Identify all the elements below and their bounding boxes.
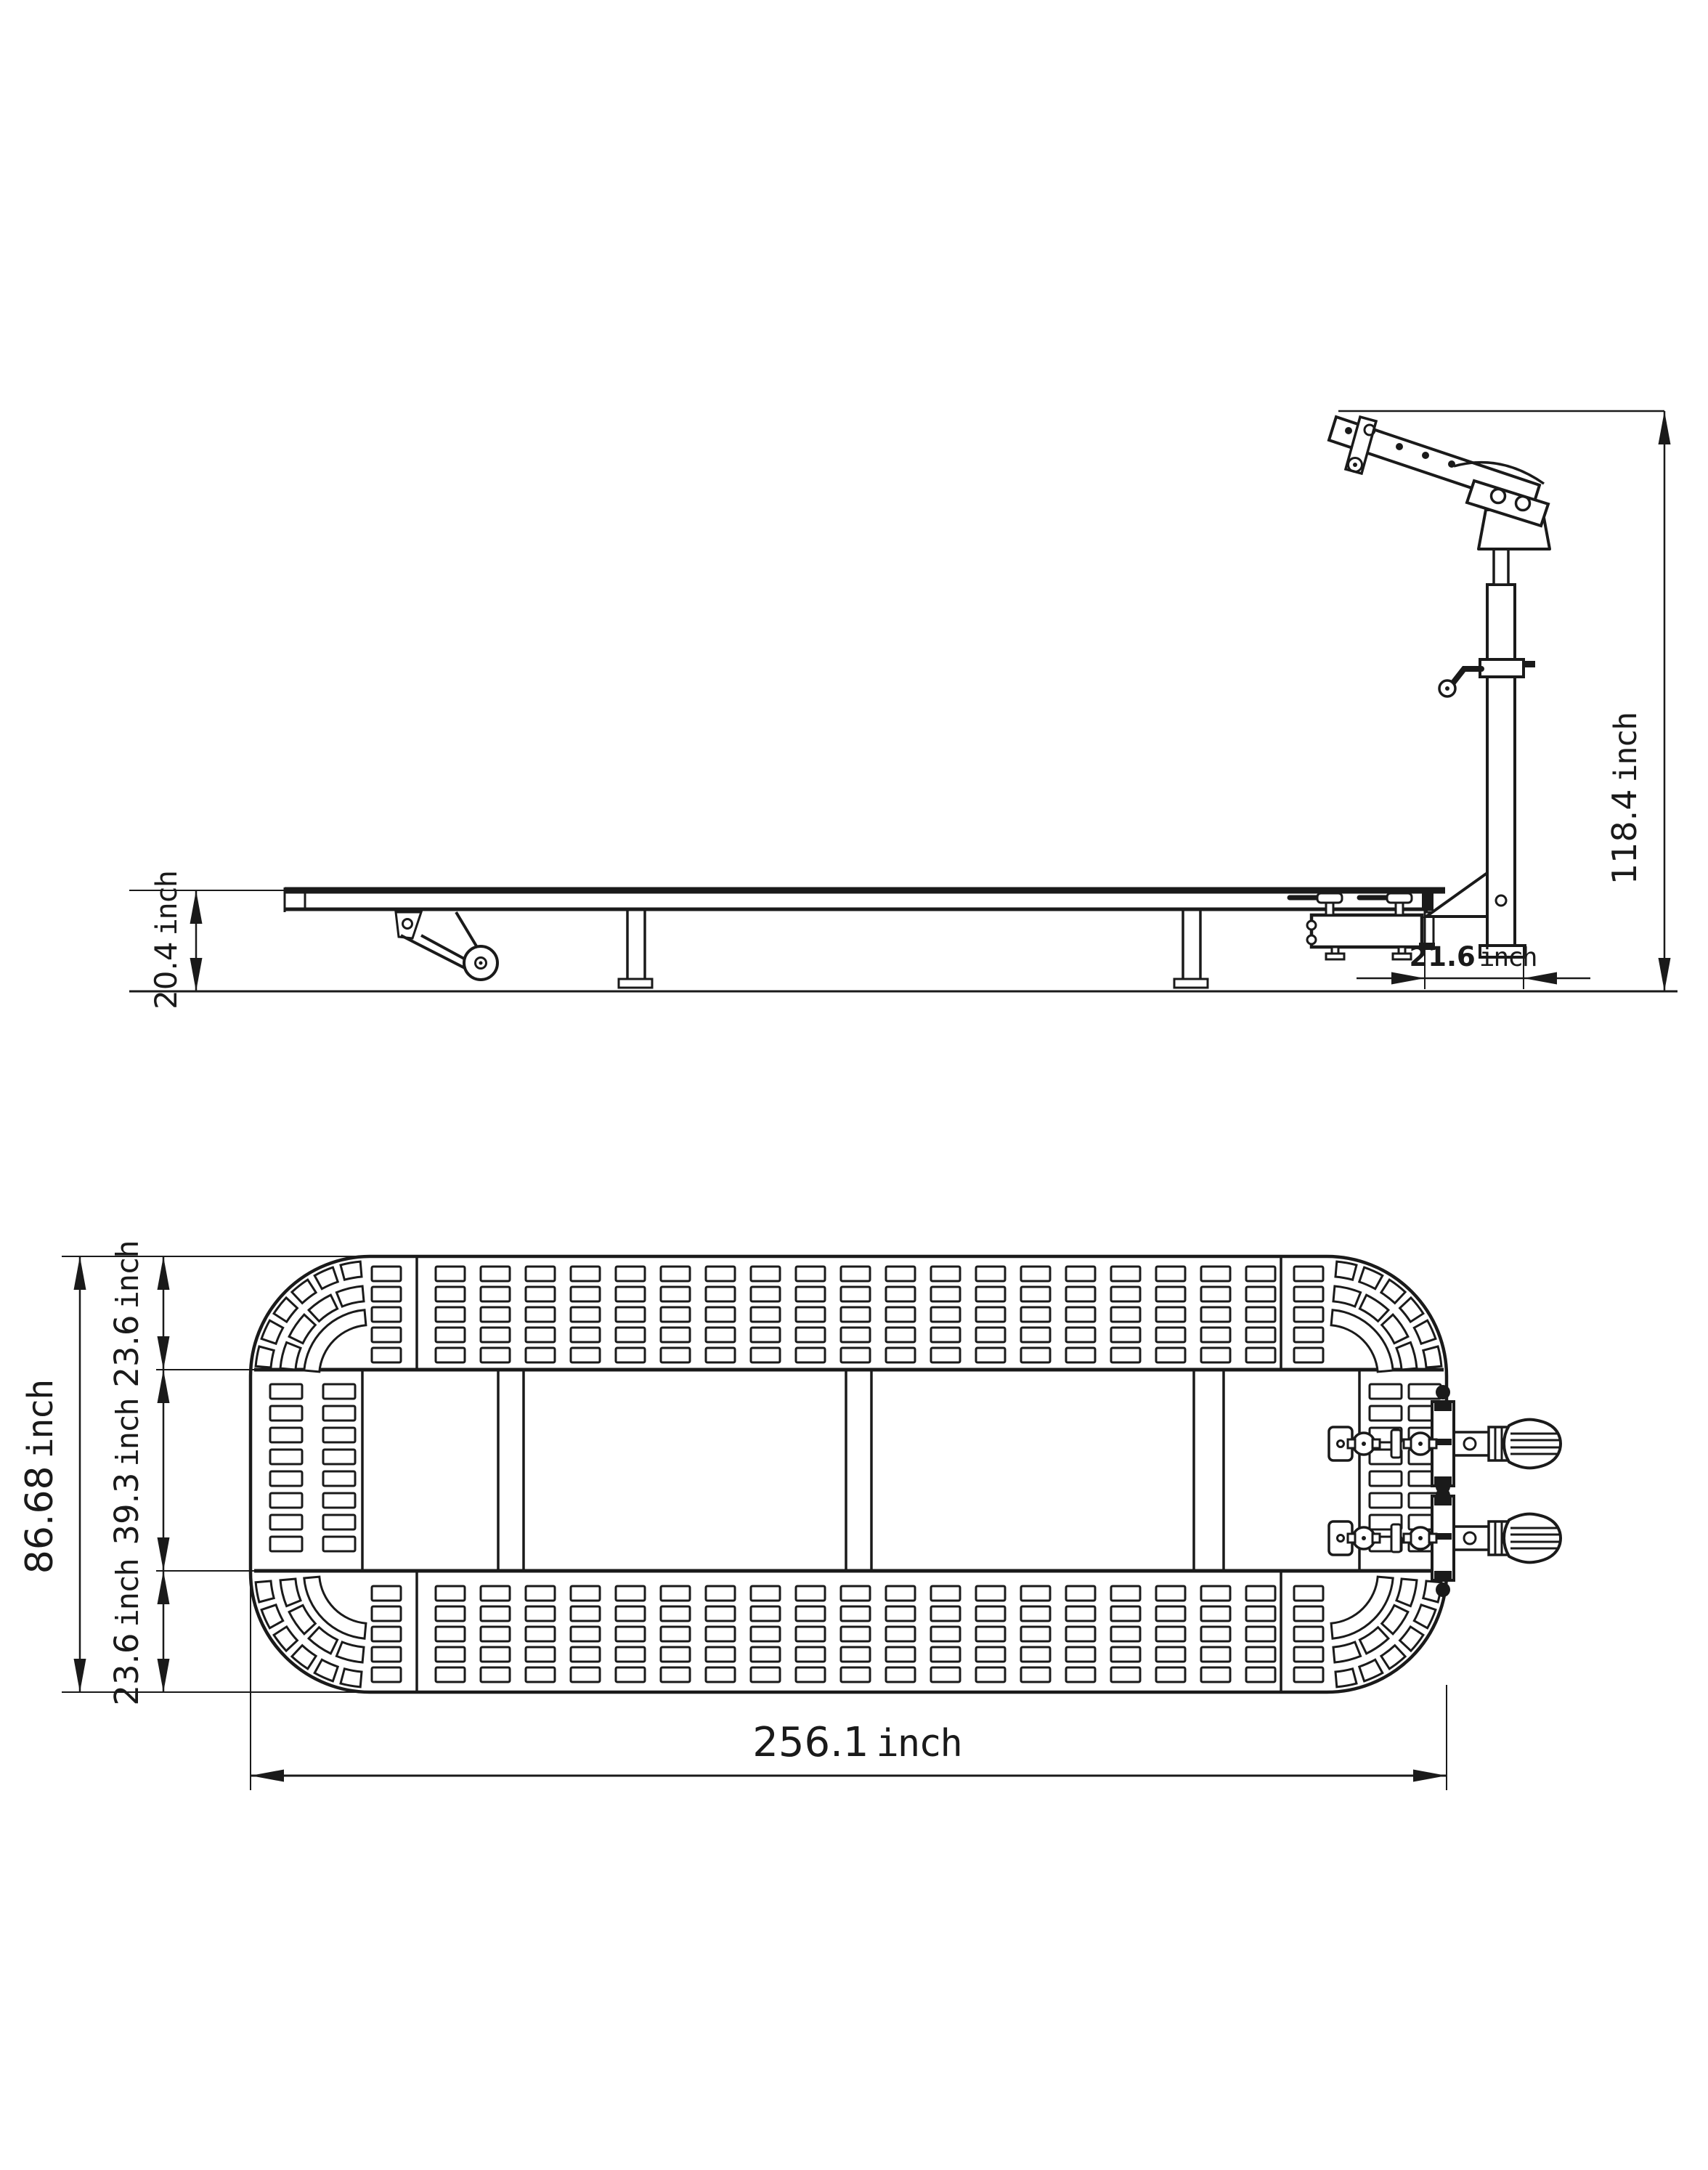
vent-slot	[372, 1667, 401, 1682]
vent-slot	[931, 1348, 960, 1362]
vent-slot	[661, 1307, 690, 1322]
vent-slot	[886, 1627, 915, 1641]
vent-slot	[270, 1493, 302, 1508]
dim-top-band: 23.6inch	[107, 1241, 146, 1387]
vent-slot	[796, 1667, 825, 1682]
vent-slot	[841, 1267, 870, 1281]
vent-slot	[886, 1586, 915, 1601]
vent-slot	[661, 1627, 690, 1641]
vent-slot	[323, 1428, 355, 1442]
vent-slot	[796, 1307, 825, 1322]
corner-arc-slot	[1335, 1261, 1357, 1280]
vent-slot	[1370, 1471, 1402, 1486]
vent-slot	[436, 1627, 465, 1641]
vent-slot	[616, 1287, 645, 1301]
dim-platform-height: 20.4inch	[148, 871, 184, 1009]
vent-slot	[1246, 1667, 1275, 1682]
dim-total-length: 256.1inch	[752, 1719, 961, 1766]
vent-slot	[481, 1267, 510, 1281]
vent-slot	[661, 1267, 690, 1281]
vent-slot	[1201, 1627, 1230, 1641]
vent-slot	[886, 1348, 915, 1362]
vent-slot	[841, 1606, 870, 1621]
vent-slot	[436, 1328, 465, 1342]
vent-slot	[481, 1586, 510, 1601]
vent-slot	[1294, 1627, 1323, 1641]
vent-slot	[751, 1267, 780, 1281]
vent-slot	[436, 1348, 465, 1362]
vent-slot	[372, 1267, 401, 1281]
vent-slot	[270, 1450, 302, 1464]
vent-slot	[526, 1606, 555, 1621]
dim-base-offset: 21.6inch	[1410, 941, 1537, 972]
vent-slot	[571, 1348, 600, 1362]
boom-arm	[1329, 417, 1548, 526]
vent-slot	[526, 1348, 555, 1362]
vent-slot	[270, 1471, 302, 1486]
vent-slot	[1246, 1606, 1275, 1621]
vent-slot	[1111, 1287, 1140, 1301]
vent-slot	[1246, 1267, 1275, 1281]
side-view: 20.4inch 118.4inch 21.6inch	[129, 411, 1677, 1009]
vent-slot	[323, 1493, 355, 1508]
vent-slot	[571, 1307, 600, 1322]
vent-slot	[1201, 1606, 1230, 1621]
vent-slot	[886, 1647, 915, 1662]
vent-slot	[976, 1606, 1005, 1621]
vent-slot	[1156, 1328, 1185, 1342]
vent-slot	[1111, 1328, 1140, 1342]
support-leg-rear	[1174, 909, 1208, 988]
vent-slot	[1294, 1647, 1323, 1662]
support-leg-front	[619, 909, 652, 988]
vent-slot	[323, 1471, 355, 1486]
vent-slot	[526, 1287, 555, 1301]
dim-middle-band: 39.3inch	[107, 1399, 146, 1545]
vent-slot	[1156, 1627, 1185, 1641]
vent-slot	[1156, 1287, 1185, 1301]
vent-slot	[1370, 1493, 1402, 1508]
vent-slot	[436, 1647, 465, 1662]
vent-slot	[1066, 1586, 1095, 1601]
corner-arc-slot	[256, 1346, 274, 1368]
vent-slot	[1294, 1667, 1323, 1682]
vent-slot	[931, 1267, 960, 1281]
vent-slot	[1246, 1307, 1275, 1322]
vent-slot	[1294, 1586, 1323, 1601]
vent-slot	[706, 1328, 735, 1342]
vent-slot	[1294, 1287, 1323, 1301]
vent-slot	[796, 1348, 825, 1362]
vent-slot	[886, 1606, 915, 1621]
vent-slot	[372, 1586, 401, 1601]
vent-slot	[270, 1515, 302, 1529]
vent-slot	[481, 1307, 510, 1322]
vent-slot	[886, 1307, 915, 1322]
vent-slot	[372, 1348, 401, 1362]
vent-slot	[1066, 1647, 1095, 1662]
vent-slot	[270, 1406, 302, 1421]
vent-slot	[1066, 1348, 1095, 1362]
vent-slot	[661, 1287, 690, 1301]
vent-slot	[616, 1307, 645, 1322]
side-view-dimensions: 20.4inch 118.4inch 21.6inch	[148, 411, 1671, 1009]
vent-slot	[1156, 1667, 1185, 1682]
vent-slot	[436, 1667, 465, 1682]
vent-slot	[1246, 1287, 1275, 1301]
vent-slot	[976, 1647, 1005, 1662]
vent-slot	[1201, 1267, 1230, 1281]
dim-total-height: 118.4inch	[1605, 713, 1644, 885]
vent-slot	[616, 1627, 645, 1641]
vent-slot	[481, 1647, 510, 1662]
vent-slot	[481, 1348, 510, 1362]
vent-slot	[751, 1307, 780, 1322]
vent-slot	[1021, 1307, 1050, 1322]
vent-slot	[796, 1606, 825, 1621]
vent-slot	[1370, 1406, 1402, 1421]
vent-slot	[751, 1586, 780, 1601]
vent-slot	[1246, 1647, 1275, 1662]
corner-arc-slot	[256, 1581, 274, 1602]
vent-slot	[571, 1627, 600, 1641]
vent-slot	[1294, 1348, 1323, 1362]
vent-slot	[841, 1627, 870, 1641]
technical-drawing-page: 20.4inch 118.4inch 21.6inch	[0, 0, 1708, 2170]
vent-slot	[436, 1606, 465, 1621]
vent-slot	[1066, 1287, 1095, 1301]
vent-slot	[1246, 1627, 1275, 1641]
vent-slot	[436, 1267, 465, 1281]
vent-slot	[796, 1627, 825, 1641]
vent-slot	[1021, 1647, 1050, 1662]
vent-slot	[616, 1586, 645, 1601]
vent-slot	[661, 1348, 690, 1362]
mast-lower-tube	[1487, 585, 1515, 946]
vent-slot	[751, 1627, 780, 1641]
vent-slot	[796, 1586, 825, 1601]
vent-slot	[323, 1406, 355, 1421]
vent-slot	[841, 1307, 870, 1322]
vent-slot	[270, 1384, 302, 1399]
vent-slot	[706, 1348, 735, 1362]
vent-slot	[323, 1450, 355, 1464]
vent-slot	[571, 1606, 600, 1621]
vent-slot	[372, 1307, 401, 1322]
vent-slot	[481, 1328, 510, 1342]
vent-slot	[571, 1647, 600, 1662]
vent-slot	[1156, 1348, 1185, 1362]
vent-slot	[796, 1267, 825, 1281]
vent-slot	[1201, 1348, 1230, 1362]
vent-slot	[571, 1267, 600, 1281]
vent-slot	[751, 1287, 780, 1301]
vent-slot	[1021, 1667, 1050, 1682]
platform	[129, 887, 1445, 912]
vent-slot	[323, 1515, 355, 1529]
vent-slot	[1246, 1328, 1275, 1342]
vent-slot	[436, 1287, 465, 1301]
dim-bottom-band: 23.6inch	[107, 1559, 146, 1705]
vent-slot	[1201, 1287, 1230, 1301]
dim-total-width: 86.68inch	[18, 1381, 62, 1574]
vent-slot	[616, 1348, 645, 1362]
vent-slot	[270, 1537, 302, 1551]
vent-slot	[481, 1606, 510, 1621]
vent-slot	[1370, 1384, 1402, 1399]
vent-slot	[796, 1647, 825, 1662]
vent-slot	[751, 1606, 780, 1621]
vent-slot	[526, 1647, 555, 1662]
mast-upper-tube	[1494, 546, 1508, 585]
vent-slot	[751, 1348, 780, 1362]
vent-slot	[1111, 1348, 1140, 1362]
vent-slot	[706, 1606, 735, 1621]
vent-slot	[372, 1287, 401, 1301]
corner-arc-slot	[1335, 1669, 1357, 1687]
vent-slot	[931, 1647, 960, 1662]
vent-slot	[616, 1606, 645, 1621]
vent-slot	[1201, 1328, 1230, 1342]
vent-slot	[706, 1667, 735, 1682]
corner-arc-slot	[341, 1669, 362, 1687]
vent-slot	[976, 1586, 1005, 1601]
vent-slot	[571, 1287, 600, 1301]
vent-slot	[1294, 1267, 1323, 1281]
vent-slot	[706, 1267, 735, 1281]
vent-slot	[886, 1667, 915, 1682]
vent-slot	[841, 1586, 870, 1601]
vent-slot	[1066, 1267, 1095, 1281]
vent-slot	[796, 1328, 825, 1342]
vent-slot	[841, 1348, 870, 1362]
vent-slot	[661, 1647, 690, 1662]
vent-slot	[661, 1328, 690, 1342]
vent-slot	[706, 1647, 735, 1662]
vent-slot	[1111, 1267, 1140, 1281]
vent-slot	[481, 1627, 510, 1641]
vent-slot	[976, 1287, 1005, 1301]
vent-slot	[1111, 1647, 1140, 1662]
vent-slot	[1021, 1606, 1050, 1621]
vent-slot	[526, 1627, 555, 1641]
kickstand-roller	[396, 912, 497, 980]
gusset-bracket	[1426, 873, 1487, 917]
vent-slot	[1201, 1307, 1230, 1322]
vent-slot	[616, 1667, 645, 1682]
vent-slot	[1201, 1647, 1230, 1662]
vent-slot	[1111, 1667, 1140, 1682]
vent-slot	[1066, 1328, 1095, 1342]
vent-slot	[372, 1627, 401, 1641]
vent-slot	[886, 1267, 915, 1281]
vent-slot	[706, 1586, 735, 1601]
vent-slot	[886, 1328, 915, 1342]
vent-slot	[1066, 1606, 1095, 1621]
vent-slot	[1201, 1586, 1230, 1601]
vent-slot	[1294, 1328, 1323, 1342]
vent-slot	[931, 1287, 960, 1301]
vent-slot	[931, 1328, 960, 1342]
vent-slot	[976, 1667, 1005, 1682]
vent-slot	[372, 1328, 401, 1342]
vent-slot	[751, 1647, 780, 1662]
vent-slot	[1156, 1586, 1185, 1601]
vent-slot	[1021, 1586, 1050, 1601]
corner-arc-slot	[341, 1261, 362, 1280]
vent-slot	[661, 1586, 690, 1601]
vent-slot	[751, 1667, 780, 1682]
vent-slot	[1021, 1267, 1050, 1281]
vent-slot	[571, 1667, 600, 1682]
vent-slot	[931, 1606, 960, 1621]
vent-slot	[526, 1267, 555, 1281]
vent-slot	[976, 1267, 1005, 1281]
vent-slot	[436, 1307, 465, 1322]
vent-slot	[931, 1627, 960, 1641]
vent-slot	[931, 1586, 960, 1601]
vent-slot	[526, 1586, 555, 1601]
vent-slot	[751, 1328, 780, 1342]
vent-slot	[1246, 1348, 1275, 1362]
vent-slot	[481, 1287, 510, 1301]
vent-slot	[481, 1667, 510, 1682]
vent-slot	[1111, 1606, 1140, 1621]
plan-view: 86.68inch 23.6inch 39.3inch 23.6inch 256…	[18, 1241, 1561, 1790]
vent-slot	[841, 1328, 870, 1342]
vent-slot	[706, 1307, 735, 1322]
vent-slot	[526, 1307, 555, 1322]
vent-slot	[616, 1328, 645, 1342]
vent-slot	[571, 1586, 600, 1601]
vent-slot	[372, 1647, 401, 1662]
vent-slot	[841, 1287, 870, 1301]
vent-slot	[1294, 1307, 1323, 1322]
vent-slot	[841, 1667, 870, 1682]
vent-slot	[436, 1586, 465, 1601]
vent-slot	[616, 1647, 645, 1662]
vent-slot	[526, 1667, 555, 1682]
vent-slot	[931, 1307, 960, 1322]
vent-slot	[372, 1606, 401, 1621]
vent-slot	[1111, 1307, 1140, 1322]
vent-slot	[976, 1307, 1005, 1322]
vent-slot	[706, 1627, 735, 1641]
vent-slot	[1066, 1627, 1095, 1641]
vent-slot	[323, 1537, 355, 1551]
vent-slot	[571, 1328, 600, 1342]
corner-arc-slot	[1423, 1346, 1441, 1368]
vent-slot	[1066, 1667, 1095, 1682]
vent-slot	[661, 1606, 690, 1621]
vent-slot	[1246, 1586, 1275, 1601]
vent-slot	[270, 1428, 302, 1442]
vent-slot	[616, 1267, 645, 1281]
vent-slot	[796, 1287, 825, 1301]
vent-slot	[526, 1328, 555, 1342]
dimension-drawing: 20.4inch 118.4inch 21.6inch	[0, 0, 1708, 2170]
vent-slot	[706, 1287, 735, 1301]
vent-slot	[1021, 1348, 1050, 1362]
vent-slot	[841, 1647, 870, 1662]
vent-slot	[1021, 1287, 1050, 1301]
vent-slot	[1294, 1606, 1323, 1621]
vent-slot	[1201, 1667, 1230, 1682]
vent-slot	[1111, 1586, 1140, 1601]
vent-slot	[1156, 1606, 1185, 1621]
vent-slot	[1021, 1627, 1050, 1641]
vent-slot	[976, 1328, 1005, 1342]
vent-slot	[1156, 1307, 1185, 1322]
vent-slot	[323, 1384, 355, 1399]
vent-slot	[976, 1627, 1005, 1641]
vent-slot	[1111, 1627, 1140, 1641]
vent-slot	[1021, 1328, 1050, 1342]
vent-slot	[1156, 1267, 1185, 1281]
vent-slot	[886, 1287, 915, 1301]
vent-slot	[931, 1667, 960, 1682]
vent-slot	[976, 1348, 1005, 1362]
vent-slot	[661, 1667, 690, 1682]
vent-slot	[1156, 1647, 1185, 1662]
vent-slot	[1066, 1307, 1095, 1322]
